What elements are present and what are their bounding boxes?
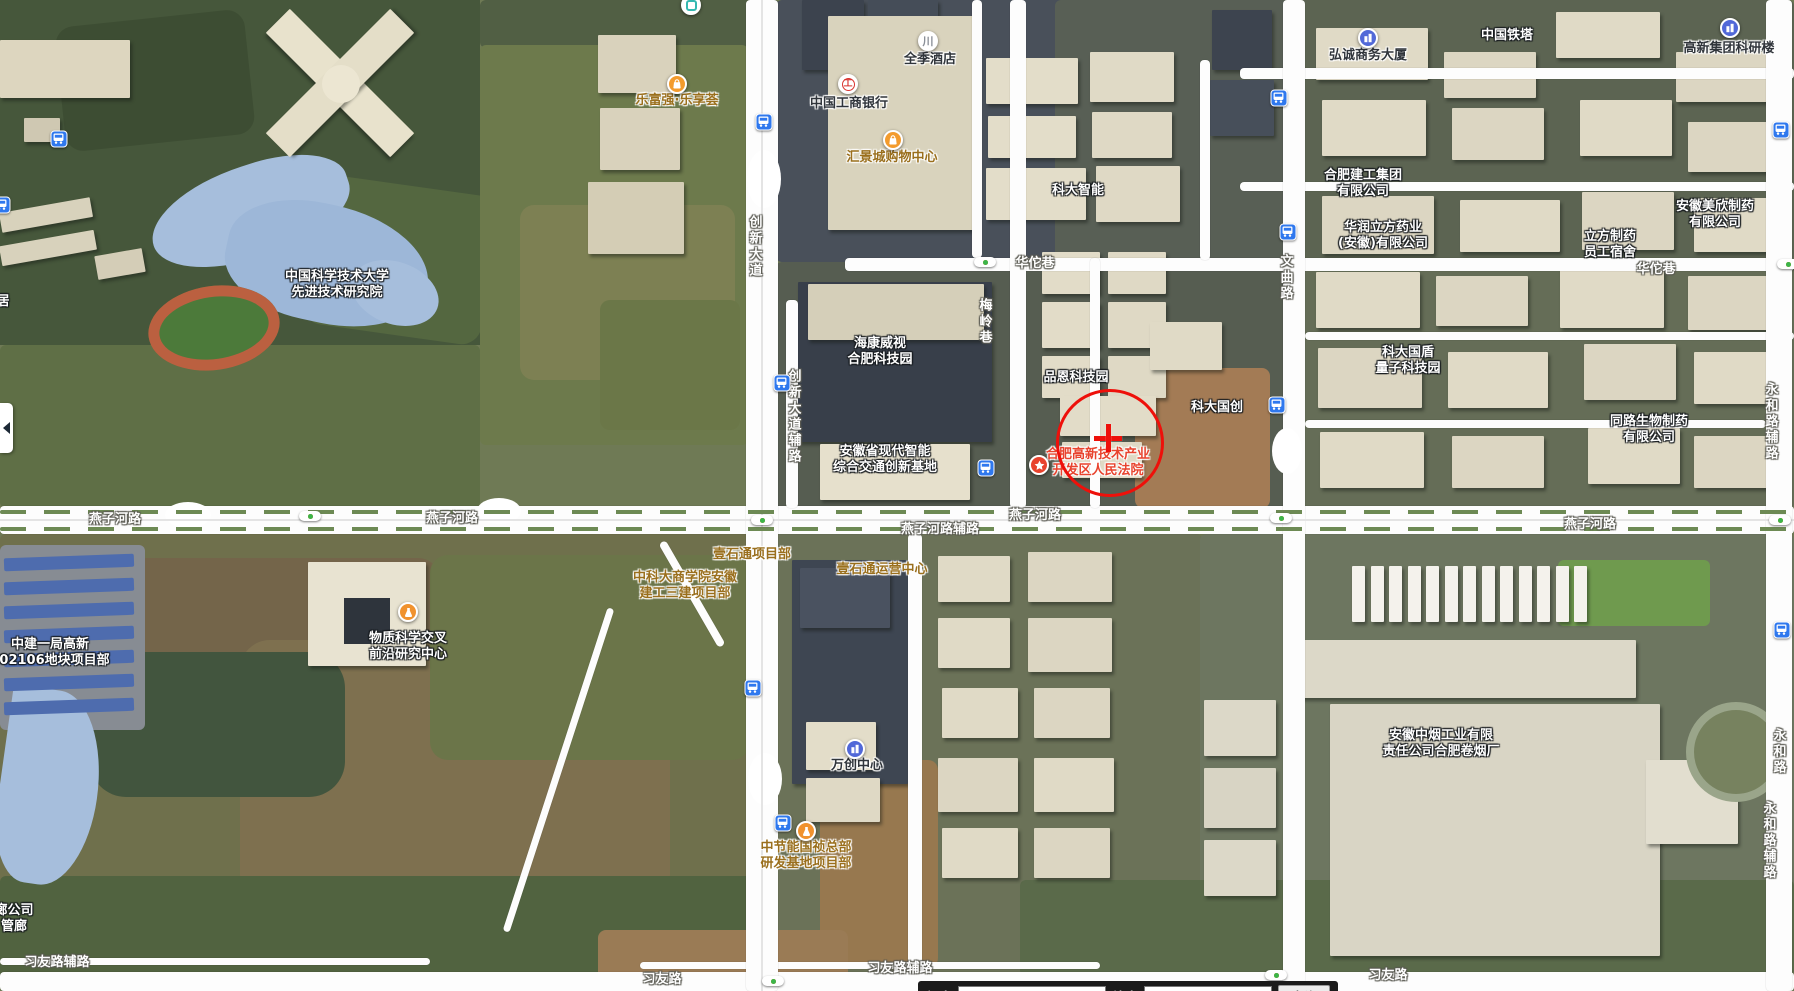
road-label-vertical: 文曲路 [1276,254,1295,302]
satellite-map[interactable]: 经度 纬度 查询 中国科学技术大学先进技术研究院科大智能海康威视合肥科技园品恩科… [0,0,1794,991]
traffic-light-icon [974,257,996,267]
poi-label[interactable]: 弘诚商务大厦 [1329,48,1407,64]
road-label: 燕子河路 [1009,508,1061,524]
traffic-light-icon [751,515,773,525]
bus-station-icon[interactable] [0,197,11,214]
building [1316,272,1420,328]
road-label-vertical: 永和路 [1769,728,1788,776]
building [1034,828,1110,878]
poi-label[interactable]: 品恩科技园 [1043,370,1108,386]
flask-icon[interactable] [796,821,816,841]
building [1204,840,1276,896]
road [748,753,782,805]
building [0,40,130,98]
road [1305,332,1794,340]
longitude-input[interactable] [958,986,1106,991]
road-label: 习友路 [1368,968,1407,984]
building [806,778,880,822]
bus-station-icon[interactable] [1773,122,1790,139]
bus-station-icon[interactable] [51,131,68,148]
road [1240,68,1794,79]
x-shaped-building [322,65,360,103]
road-label: 燕子河路辅路 [901,522,979,538]
warehouse-row [1500,566,1513,622]
road-markings [0,519,1794,521]
warehouse-row [1426,566,1439,622]
poi-label[interactable]: 科大智能 [1052,183,1104,199]
bus-station-icon[interactable] [1280,224,1297,241]
road-label: 燕子河路 [1564,517,1616,533]
building-icon[interactable] [845,739,865,759]
warehouse-row [1445,566,1458,622]
poi-label[interactable]: 中国科学技术大学先进技术研究院 [285,269,389,301]
satellite-terrain [600,300,740,430]
building [1150,322,1222,370]
poi-label[interactable]: 中节能国祯总部研发基地项目部 [760,840,851,872]
poi-label[interactable]: 物质科学交叉前沿研究中心 [369,631,447,663]
satellite-terrain [0,345,480,508]
road-label: 习友路 [642,972,681,988]
building [1288,640,1636,698]
traffic-light-icon [299,511,321,521]
road-label: 习友路辅路 [24,955,89,971]
building [1584,344,1676,400]
poi-label[interactable]: 华润立方药业(安徽)有限公司 [1338,220,1428,252]
road [1283,0,1305,991]
poi-label[interactable]: 同路生物制药有限公司 [1610,414,1688,446]
poi-label[interactable]: 壹石通项目部 [713,547,791,563]
building [1210,80,1274,136]
road [747,150,781,208]
longitude-label: 经度 [926,987,952,991]
road-label: 习友路辅路 [867,961,932,977]
bag-icon[interactable] [883,130,903,150]
road [1272,428,1302,474]
road [165,502,211,528]
warehouse-row [1574,566,1587,622]
poi-label[interactable]: 合肥建工集团有限公司 [1324,168,1402,200]
road-label: 燕子河路 [426,511,478,527]
building [938,556,1010,602]
warehouse-row [1556,566,1569,622]
traffic-light-icon [762,976,784,986]
hotel-icon[interactable]: 川 [918,31,938,51]
poi-label[interactable]: 立方制药员工宿舍 [1584,229,1636,261]
warehouse-row [1389,566,1402,622]
traffic-light-icon [1769,515,1791,525]
building [1212,10,1272,70]
bag-icon[interactable] [667,74,687,94]
road-label-vertical: 创新大道 [745,215,764,279]
flask-icon[interactable] [398,602,418,622]
road-label-vertical: 永和路辅路 [1759,801,1778,881]
bus-station-icon[interactable] [1269,397,1286,414]
road [972,0,982,258]
warehouse-row [1519,566,1532,622]
building [986,58,1078,104]
poi-label[interactable]: 廊公司管廊 [0,903,34,935]
building-icon[interactable] [1720,18,1740,38]
poi-label[interactable]: 全季酒店 [904,52,956,68]
chevron-left-icon [3,422,10,434]
warehouse-row [1463,566,1476,622]
poi-label[interactable]: 中国工商银行 [810,96,888,112]
bus-station-icon[interactable] [756,114,773,131]
building [1092,112,1172,158]
warehouse-row [1408,566,1421,622]
bus-station-icon[interactable] [775,815,792,832]
poi-label[interactable]: 高新集团科研楼 [1683,41,1774,57]
building [938,758,1018,812]
poi-label[interactable]: 安徽省现代智能综合交通创新基地 [833,444,937,476]
poi-label[interactable]: 壹石通运营中心 [836,562,927,578]
building [1320,432,1424,488]
poi-label[interactable]: 中科大商学院安徽建工三建项目部 [633,570,737,602]
road [908,534,922,974]
warehouse-row [1371,566,1384,622]
poi-label[interactable]: 科大国创 [1191,400,1243,416]
road-median [0,510,1794,514]
road-label: 华佗巷 [1636,262,1675,278]
building [1460,200,1560,252]
bus-station-icon[interactable] [1774,622,1791,639]
road [1200,60,1210,260]
building [828,16,974,230]
building [808,284,984,340]
building [1034,758,1114,812]
panel-collapse-tab[interactable] [0,403,13,453]
building [598,35,676,93]
warehouse-row [1482,566,1495,622]
traffic-light-icon [1777,259,1794,269]
building [942,688,1018,738]
building [1034,688,1110,738]
building [600,108,680,170]
crosshair-marker [1106,424,1111,452]
star-icon[interactable] [1029,455,1049,475]
building [1436,276,1528,326]
bus-station-icon[interactable] [774,375,791,392]
poi-label[interactable]: 海康威视合肥科技园 [847,336,912,368]
query-button[interactable]: 查询 [1278,985,1330,991]
road-median [0,527,1794,531]
road [1010,0,1026,508]
bus-station-icon[interactable] [745,680,762,697]
bank-icon[interactable]: 工 [838,74,858,94]
building [988,116,1076,158]
building [938,618,1010,668]
building [1204,700,1276,756]
road [1305,420,1766,428]
poi-label[interactable]: 乐富强·乐享荟 [636,93,719,109]
poi-label[interactable]: 科大国盾量子科技园 [1375,345,1440,377]
building [1090,52,1174,102]
building [1028,618,1112,672]
warehouse-row [1537,566,1550,622]
building [1448,352,1548,408]
building [1556,12,1660,58]
road-label: 燕子河路 [89,512,141,528]
traffic-light-icon [1270,513,1292,523]
building [1096,166,1180,222]
road-label-vertical: 永和路辅路 [1761,382,1780,462]
building [1322,100,1426,156]
latitude-input[interactable] [1144,986,1272,991]
poi-label[interactable]: 汇景城购物中心 [846,150,937,166]
poi-label[interactable]: 中建一局高新202106地块项目部 [0,637,110,669]
road-label: 华佗巷 [1015,256,1054,272]
road-label-vertical: 梅岭巷 [975,298,994,346]
building [1204,768,1276,828]
poi-label[interactable]: 中国铁塔 [1481,28,1533,44]
poi-label[interactable]: 居 [0,294,10,310]
building [1028,552,1112,602]
building [1580,100,1672,156]
poi-label[interactable]: 安徽美欣制药有限公司 [1676,199,1754,231]
poi-label[interactable]: 安徽中烟工业有限责任公司合肥卷烟厂 [1382,728,1499,760]
building [588,182,684,254]
building [942,828,1018,878]
traffic-light-icon [1265,970,1287,980]
building-icon[interactable] [1358,28,1378,48]
building [1452,108,1544,160]
latitude-label: 纬度 [1112,987,1138,991]
warehouse-row [1352,566,1365,622]
coordinate-query-bar: 经度 纬度 查询 [918,981,1338,991]
building [1452,436,1544,488]
bus-station-icon[interactable] [978,460,995,477]
poi-label[interactable]: 万创中心 [831,758,883,774]
bus-station-icon[interactable] [1271,90,1288,107]
